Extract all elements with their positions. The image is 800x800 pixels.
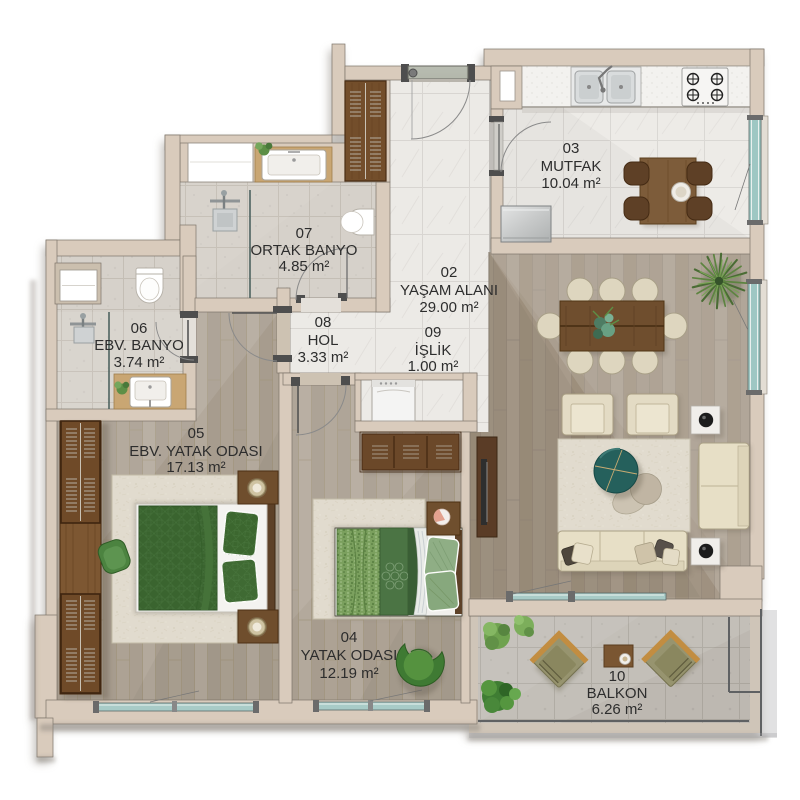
svg-text:6.26 m²: 6.26 m² xyxy=(592,701,643,718)
svg-text:3.74 m²: 3.74 m² xyxy=(114,354,165,371)
svg-text:HOL: HOL xyxy=(308,332,339,349)
svg-text:EBV. YATAK ODASI: EBV. YATAK ODASI xyxy=(129,443,262,460)
svg-text:4.85 m²: 4.85 m² xyxy=(279,258,330,275)
svg-text:EBV. BANYO: EBV. BANYO xyxy=(94,337,184,354)
svg-text:BALKON: BALKON xyxy=(587,685,648,702)
svg-text:06: 06 xyxy=(131,320,148,337)
svg-text:İŞLİK: İŞLİK xyxy=(415,341,452,359)
svg-text:10.04 m²: 10.04 m² xyxy=(541,175,600,192)
svg-text:08: 08 xyxy=(315,314,332,331)
svg-text:09: 09 xyxy=(425,324,442,341)
svg-text:29.00 m²: 29.00 m² xyxy=(419,299,478,316)
svg-text:07: 07 xyxy=(296,225,313,242)
svg-text:3.33 m²: 3.33 m² xyxy=(298,349,349,366)
svg-text:12.19 m²: 12.19 m² xyxy=(319,665,378,682)
svg-text:05: 05 xyxy=(188,425,205,442)
svg-text:ORTAK BANYO: ORTAK BANYO xyxy=(251,242,358,259)
svg-text:10: 10 xyxy=(609,668,626,685)
svg-text:17.13 m²: 17.13 m² xyxy=(166,459,225,476)
svg-text:1.00 m²: 1.00 m² xyxy=(408,358,459,375)
svg-text:04: 04 xyxy=(341,629,358,646)
svg-text:YAŞAM ALANI: YAŞAM ALANI xyxy=(400,282,498,299)
svg-text:YATAK ODASI: YATAK ODASI xyxy=(301,647,398,664)
svg-text:MUTFAK: MUTFAK xyxy=(541,158,602,175)
svg-text:03: 03 xyxy=(563,140,580,157)
svg-text:02: 02 xyxy=(441,264,458,281)
